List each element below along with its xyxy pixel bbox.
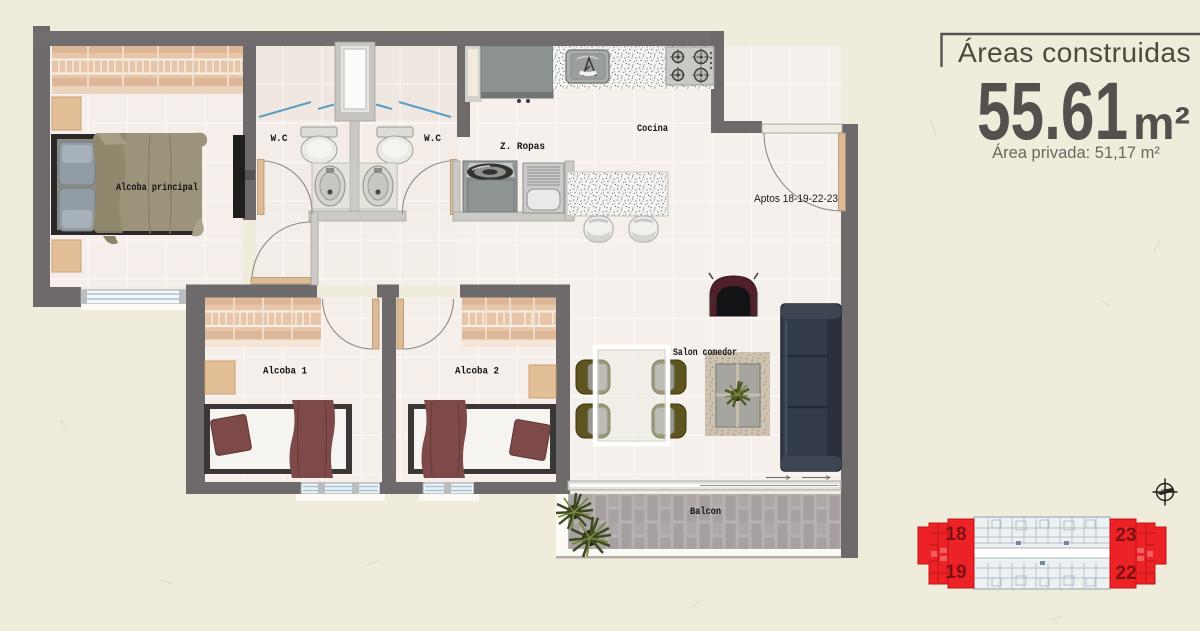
svg-text:W.C: W.C (271, 134, 288, 145)
svg-text:Alcoba 2: Alcoba 2 (455, 366, 499, 378)
svg-text:Alcoba 1: Alcoba 1 (263, 366, 307, 378)
svg-text:18: 18 (945, 524, 966, 545)
svg-text:Aptos 18-19-22-23: Aptos 18-19-22-23 (754, 193, 838, 205)
svg-text:19: 19 (945, 562, 966, 583)
svg-text:23: 23 (1115, 525, 1136, 546)
svg-text:Balcon: Balcon (690, 506, 721, 518)
svg-text:m²: m² (1133, 97, 1190, 149)
svg-text:Z. Ropas: Z. Ropas (500, 142, 545, 153)
svg-text:22: 22 (1115, 563, 1136, 584)
svg-text:Salon comedor: Salon comedor (673, 347, 737, 359)
svg-text:W.C: W.C (424, 134, 441, 145)
svg-text:Cocina: Cocina (637, 123, 668, 135)
svg-text:Alcoba principal: Alcoba principal (116, 182, 198, 194)
svg-text:Área privada: 51,17 m²: Área privada: 51,17 m² (992, 143, 1160, 162)
svg-text:Áreas construidas: Áreas construidas (958, 37, 1191, 68)
